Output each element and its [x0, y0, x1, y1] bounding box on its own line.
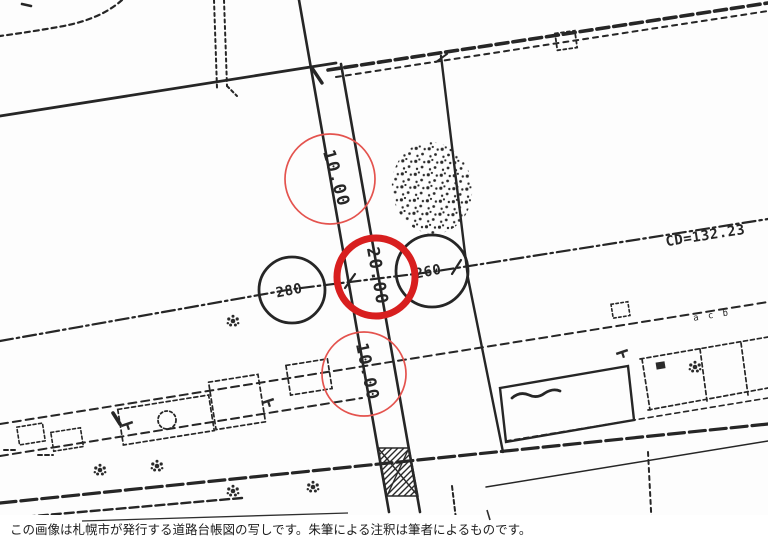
map-canvas: 280 260 CD=132.23 10.00 20.00 10.00 — [0, 0, 768, 539]
small-structure-mark — [656, 361, 666, 369]
caption-text: この画像は札幌市が発行する道路台帳図の写しです。朱筆による注釈は筆者によるもので… — [10, 519, 760, 538]
scanned-road-ledger-map: 280 260 CD=132.23 10.00 20.00 10.00 — [0, 0, 768, 539]
